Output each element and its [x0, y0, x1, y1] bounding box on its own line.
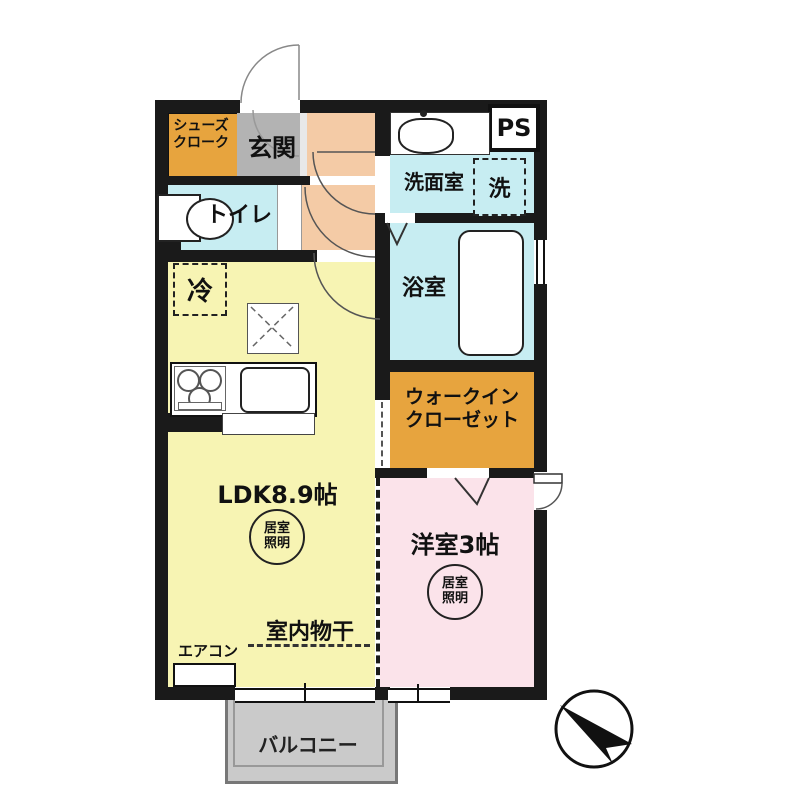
washroom-label: 洗面室: [392, 170, 476, 194]
western-window-tick: [417, 684, 419, 702]
ldk-western-partition-dashed: [376, 478, 380, 687]
refrigerator-space: 冷: [173, 263, 227, 316]
western-room-label: 洋室3帖: [402, 531, 508, 560]
pipe-space-box: PS: [488, 104, 540, 152]
wall-bottom-left: [155, 687, 235, 700]
wall-below-entrance: [155, 176, 310, 185]
washer-space: 洗: [473, 158, 526, 216]
indoor-drying-dashed-rail: [248, 644, 370, 647]
western-room-light-badge: 居室照明: [427, 564, 483, 620]
wall-right: [534, 100, 547, 700]
indoor-drying-label: 室内物干: [250, 620, 370, 646]
entrance-door-opening: [240, 100, 300, 113]
wall-center-mid: [375, 222, 390, 372]
counter-return: [222, 413, 315, 435]
wash-basin-icon: [398, 118, 454, 154]
entrance-label: 玄関: [240, 134, 304, 163]
washer-label: 洗: [488, 171, 510, 203]
wic-label: ウォークインクローゼット: [395, 386, 529, 432]
north-arrow-icon: [556, 691, 632, 767]
ldk-label: LDK8.9帖: [210, 481, 345, 510]
hallway-upper: [307, 108, 375, 176]
wall-left: [155, 100, 168, 700]
stove-grill-bar: [178, 402, 222, 410]
aircon-label: エアコン: [176, 642, 240, 660]
bathroom-window-line2: [543, 240, 545, 284]
western-room-window: [388, 688, 450, 703]
floor-plan: PS 洗 冷: [0, 0, 800, 800]
aircon-box: [173, 663, 236, 687]
refrigerator-label: 冷: [187, 271, 213, 308]
bathtub-icon: [458, 230, 524, 356]
toilet-door-opening: [277, 185, 302, 250]
wall-bottom-right: [450, 687, 547, 700]
toilet-label: トイレ: [198, 203, 280, 229]
balcony-label: バルコニー: [243, 733, 373, 757]
shoe-closet-label: シューズクローク: [165, 118, 237, 152]
ldk-room-light-badge: 居室照明: [249, 509, 305, 565]
western-room-door-opening: [534, 472, 547, 510]
pipe-space-label: PS: [497, 114, 532, 143]
ceiling-hatch-box: [247, 303, 299, 354]
balcony-window-tick: [304, 683, 306, 703]
wic-door-opening: [427, 468, 489, 478]
wic-side-opening-dash: [381, 402, 383, 466]
bathroom-door-opening: [385, 213, 415, 223]
wall-center-upper: [375, 108, 390, 156]
kitchen-sink-icon: [240, 367, 310, 413]
wall-below-toilet: [155, 250, 317, 262]
wall-below-bathroom: [375, 360, 547, 372]
bathroom-label: 浴室: [398, 276, 450, 302]
faucet-dot-icon: [420, 110, 427, 117]
bathroom-window-line1: [536, 240, 538, 284]
wall-wic-left: [375, 372, 390, 400]
hallway-lower: [300, 185, 375, 250]
